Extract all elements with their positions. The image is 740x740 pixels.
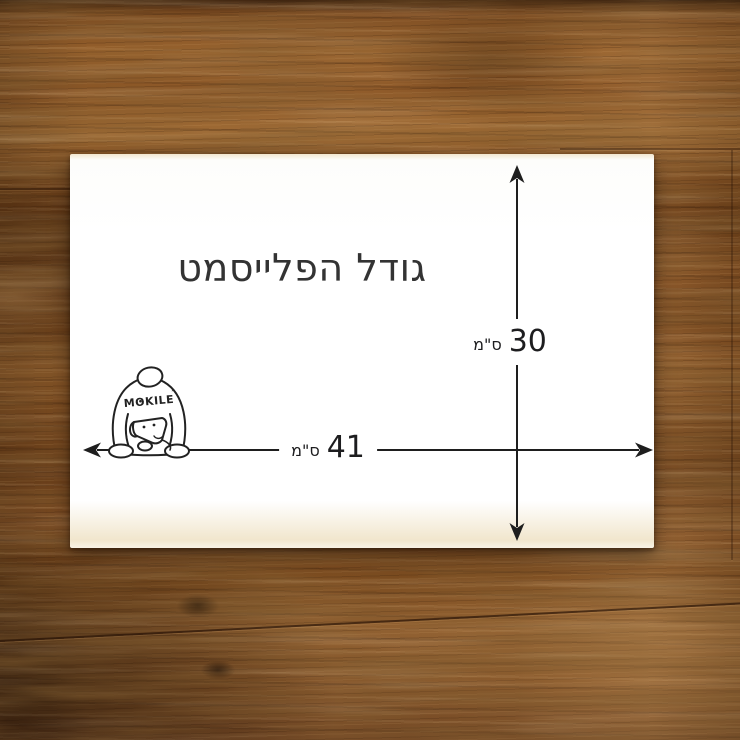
height-unit: ס"מ (473, 332, 502, 353)
plank-seam (560, 148, 740, 150)
mokile-character (109, 366, 189, 458)
width-unit: ס"מ (291, 438, 320, 459)
height-value: 30 (509, 327, 547, 357)
plank-seam (731, 150, 733, 560)
width-dimension-label: ס"מ 41 (279, 428, 377, 468)
mokile-logo: MOKILE ’ (104, 366, 194, 466)
scene: גודל הפלייסמט (0, 0, 740, 740)
placemat-card: גודל הפלייסמט (70, 154, 654, 548)
plank-seam (0, 188, 70, 190)
height-dimension-label: ס"מ 30 (459, 319, 561, 365)
dimension-arrows (70, 154, 654, 548)
width-value: 41 (327, 433, 365, 463)
